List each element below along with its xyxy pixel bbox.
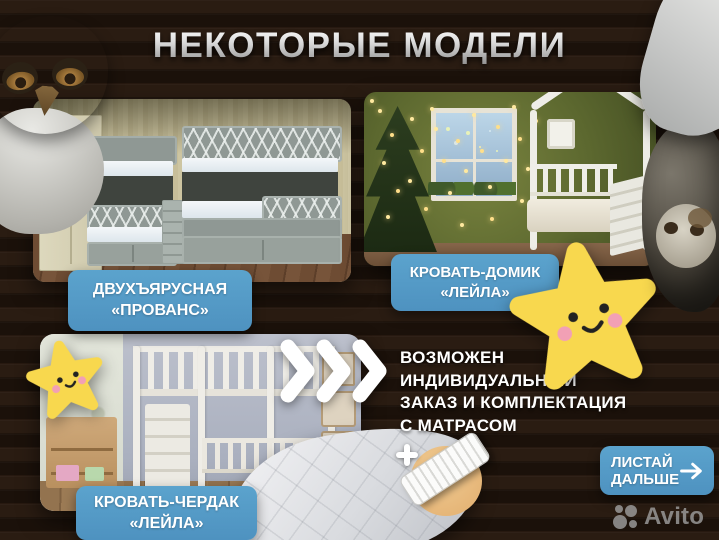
- model-label-bunk: ДВУХЪЯРУСНАЯ «ПРОВАНС»: [68, 270, 252, 331]
- swipe-next-line: ЛИСТАЙ: [611, 454, 679, 471]
- house-bed: [525, 101, 651, 251]
- avito-logo-icon: [611, 502, 641, 532]
- swipe-next-label: ЛИСТАЙ ДАЛЬШЕ: [611, 454, 679, 488]
- arrow-right-icon: [679, 460, 703, 482]
- model-label-line: «ЛЕЙЛА»: [76, 514, 257, 534]
- model-label-line: КРОВАТЬ-ЧЕРДАК: [76, 493, 257, 513]
- loft-bed-post: [198, 346, 205, 498]
- triple-chevron-right-icon: [280, 337, 388, 405]
- model-label-line: «ПРОВАНС»: [68, 301, 252, 321]
- loft-bed-post: [133, 346, 140, 498]
- bunk-bed-right-low-mattress: [182, 201, 268, 217]
- model-label-line: ДВУХЪЯРУСНАЯ: [68, 280, 252, 300]
- chevron-right-icon: [352, 337, 388, 405]
- avito-watermark-text: Avito: [644, 503, 704, 531]
- chevron-right-icon: [280, 337, 316, 405]
- window-plants: [428, 182, 516, 194]
- toy-box-green: [85, 467, 104, 481]
- house-bed-roof-window: [547, 119, 575, 149]
- bunk-bed-right-top-rail: [182, 126, 342, 161]
- toy-box-pink: [56, 465, 78, 481]
- bunk-bed-right-top-mattress: [182, 158, 338, 173]
- owl-face: [656, 204, 716, 268]
- promo-line: С МАТРАСОМ: [400, 415, 626, 438]
- avito-watermark: Avito: [611, 502, 704, 532]
- loft-bed-stairs: [145, 404, 189, 498]
- fairy-lights: [370, 99, 374, 103]
- house-bed-railing: [530, 164, 618, 197]
- bunk-bed-right-drawers: [182, 236, 342, 264]
- model-label-loft: КРОВАТЬ-ЧЕРДАК «ЛЕЙЛА»: [76, 486, 257, 540]
- swipe-next-line: ДАЛЬШЕ: [611, 471, 679, 488]
- promo-line: ЗАКАЗ И КОМПЛЕКТАЦИЯ: [400, 392, 626, 415]
- house-bed-mattress: [527, 199, 617, 232]
- swipe-next-button[interactable]: ЛИСТАЙ ДАЛЬШЕ: [600, 446, 714, 495]
- listing-slide: НЕКОТОРЫЕ МОДЕЛИ: [0, 0, 719, 540]
- owl-eye: [52, 58, 88, 90]
- plus-icon: [396, 444, 418, 466]
- owl-plush-left: [0, 16, 120, 234]
- smiling-star-plush-small-left: [17, 330, 116, 426]
- chevron-right-icon: [316, 337, 352, 405]
